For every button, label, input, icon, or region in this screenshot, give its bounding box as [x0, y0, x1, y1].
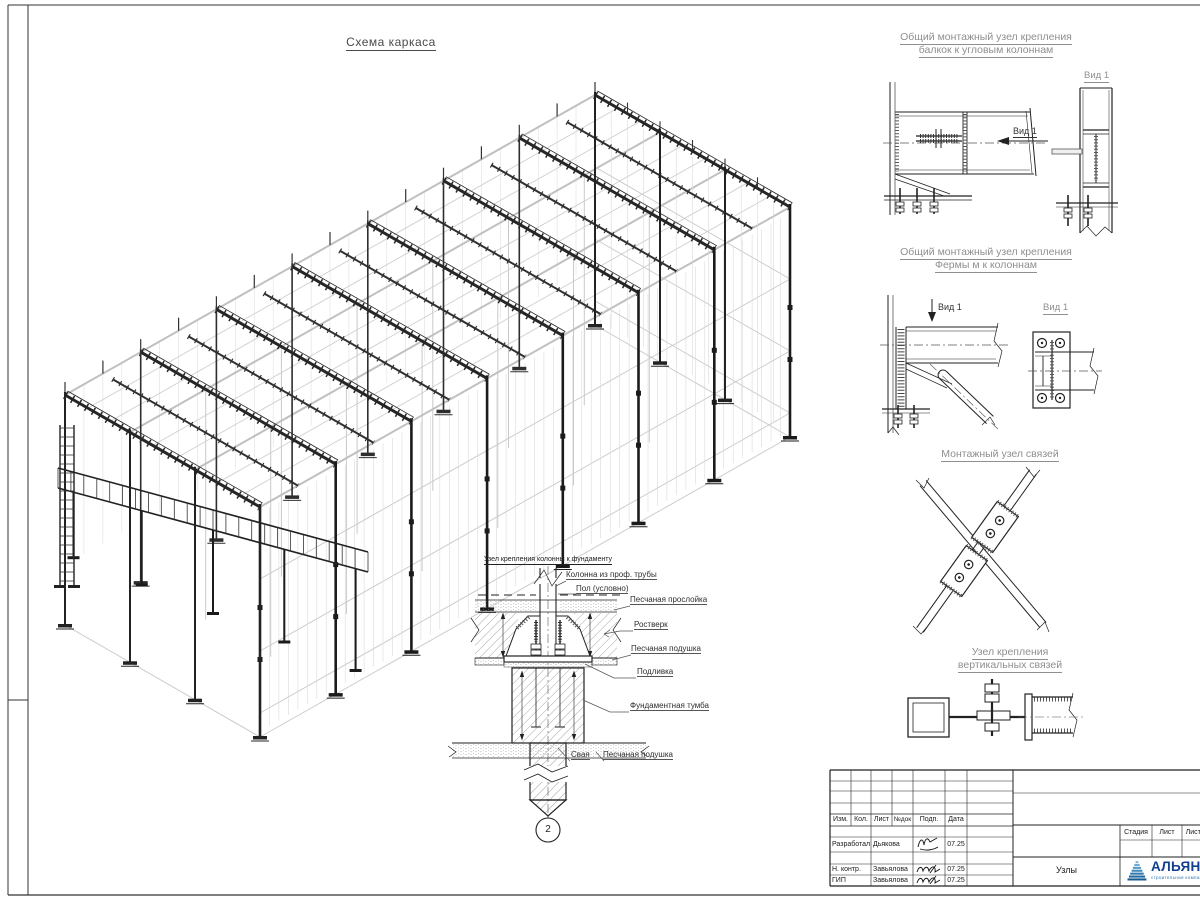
tb-row-name: Дьякова: [873, 841, 900, 849]
foundation-label-pile: Свая: [571, 750, 590, 760]
tb-sheets-label: Листов: [1182, 829, 1200, 837]
tb-row-role: ГИП: [832, 877, 846, 885]
tb-row-date: 07.25: [945, 866, 967, 874]
detail2-view-arrow-label: Вид 1: [938, 302, 962, 312]
detail4-drawing: [908, 679, 1085, 740]
tb-row-date: 07.25: [945, 877, 967, 885]
tb-header-data: Дата: [945, 816, 967, 824]
detail2-title: Общий монтажный узел крепления Фермы м к…: [862, 246, 1110, 272]
detail4-title: Узел крепления вертикальных связей: [900, 646, 1120, 672]
detail4-title-line1: Узел крепления: [972, 646, 1049, 660]
detail2-title-line2: Фермы м к колоннам: [935, 259, 1037, 273]
foundation-label-column: Колонна из проф. трубы: [566, 570, 657, 580]
tb-row-role: Н. контр.: [832, 866, 861, 874]
foundation-title: Узел крепления колонны к фундаменту: [440, 556, 656, 563]
logo-name: АЛЬЯНС: [1151, 859, 1200, 874]
foundation-detail-drawing: [448, 566, 649, 842]
tb-header-kol: Кол.: [851, 816, 871, 824]
tb-row-name: Завьялова: [873, 866, 908, 874]
tb-row-role: Разработал: [832, 841, 870, 849]
logo-tagline: строительная компания: [1151, 875, 1200, 880]
detail2-view-title: Вид 1: [1043, 302, 1068, 313]
detail1-title-line1: Общий монтажный узел крепления: [900, 31, 1072, 45]
main-title: Схема каркаса: [291, 35, 491, 49]
tb-doc-name: Узлы: [1013, 866, 1120, 874]
foundation-label-grout: Подливка: [637, 667, 673, 677]
tb-header-list: Лист: [871, 816, 892, 824]
foundation-label-floor: Пол (условно): [576, 584, 628, 594]
logo-triangle-icon: [1128, 861, 1147, 881]
tb-header-izm: Изм.: [830, 816, 851, 824]
detail1-drawing: [883, 82, 1118, 236]
foundation-label-foundation-block: Фундаментная тумба: [630, 701, 709, 711]
foundation-marker: 2: [542, 824, 554, 835]
tb-sheet-label: Лист: [1152, 829, 1182, 837]
foundation-label-grillage: Ростверк: [634, 620, 668, 630]
detail2-drawing: [880, 295, 1102, 435]
detail3-drawing: [913, 467, 1049, 634]
tb-stage-label: Стадия: [1120, 829, 1152, 837]
detail1-view-arrow-label: Вид 1: [1013, 126, 1037, 136]
tb-header-ndok: №док: [892, 816, 913, 824]
tb-row-name: Завьялова: [873, 877, 908, 885]
signature: [917, 838, 940, 884]
drawing-sheet: { "sheet": { "title": "Схема каркаса" },…: [0, 0, 1200, 900]
foundation-label-sand-cushion2: Песчаная подушка: [603, 750, 673, 760]
tb-row-date: 07.25: [945, 841, 967, 849]
detail1-view-title: Вид 1: [1084, 70, 1109, 81]
foundation-label-sand-layer: Песчаная прослойка: [630, 595, 707, 605]
detail4-title-line2: вертикальных связей: [958, 659, 1062, 673]
detail3-title: Монтажный узел связей: [890, 448, 1110, 460]
detail1-title-line2: балкок к угловым колоннам: [919, 44, 1054, 58]
detail2-title-line1: Общий монтажный узел крепления: [900, 246, 1072, 260]
tb-header-podp: Подп.: [913, 816, 945, 824]
detail1-title: Общий монтажный узел крепления балкок к …: [862, 31, 1110, 57]
foundation-label-sand-cushion: Песчаная подушка: [631, 644, 701, 654]
